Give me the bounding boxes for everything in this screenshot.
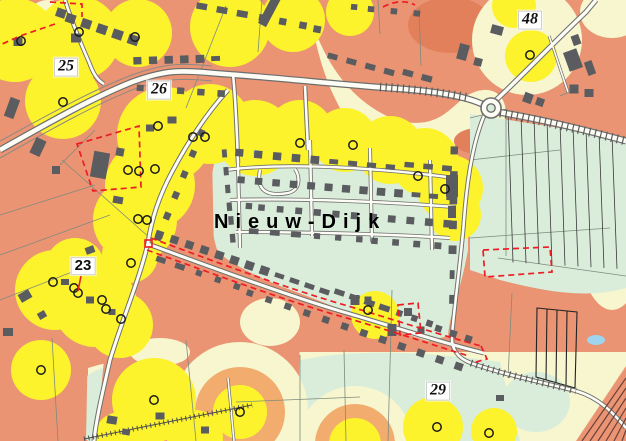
roundabout	[481, 98, 501, 118]
noise-zone-yellow	[11, 340, 71, 400]
water-pond	[587, 335, 605, 345]
map-canvas[interactable]: 2526482329Nieuw-Dijk	[0, 0, 626, 441]
